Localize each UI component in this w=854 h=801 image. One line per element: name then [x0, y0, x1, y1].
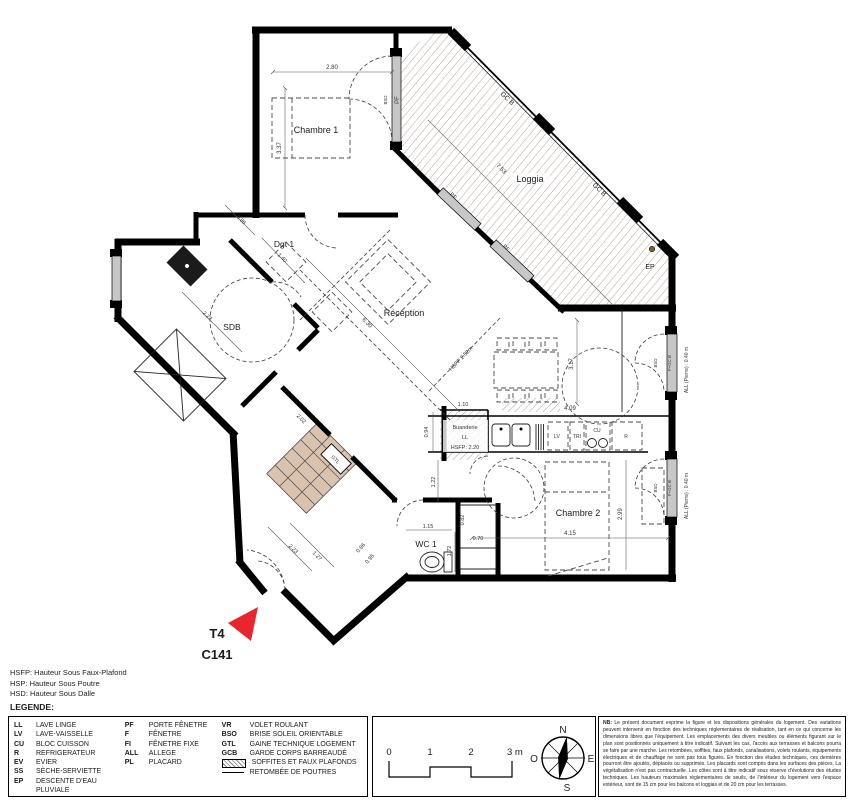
compass-n: N: [559, 725, 566, 736]
room-label-loggia: Loggia: [516, 174, 543, 184]
window-sdb: [112, 256, 121, 301]
legend-row: LVLAVE-VAISSELLE: [14, 730, 119, 739]
legend-column-3: VRVOLET ROULANT BSOBRISE SOLEIL ORIENTAB…: [222, 721, 362, 792]
f-gcb-label-1: F+GC B: [667, 355, 672, 371]
legend-row: FIFÊNETRE FIXE: [125, 740, 216, 749]
scale-bar: 0 1 2 3 m: [386, 747, 523, 777]
compass-rose: N S E O: [530, 725, 595, 794]
legend-column-2: PFPORTE FÊNETRE FFÊNETRE FIFÊNETRE FIXE …: [125, 721, 216, 792]
legend-row: VRVOLET ROULANT: [222, 721, 362, 730]
kitchen-cu-label: CU: [593, 428, 601, 434]
hatch-swatch-icon: [222, 759, 246, 768]
scale-and-compass-box: 0 1 2 3 m N S E O: [372, 716, 596, 797]
legend-row: EPDESCENTE D'EAU PLUVIALE: [14, 777, 119, 796]
room-label-dgt1: Dgt 1: [274, 239, 295, 249]
floor-plan-drawing: GTL Chambre 1 Loggia Dgt 1 SDB Réception…: [0, 0, 854, 666]
compass-e: E: [588, 754, 595, 765]
svg-text:3.37: 3.37: [277, 142, 283, 154]
svg-text:1.72: 1.72: [447, 546, 453, 557]
legend-row: BSOBRISE SOLEIL ORIENTABLE: [222, 730, 362, 739]
svg-text:0.86: 0.86: [355, 542, 367, 554]
bso-label-chambre2: BSO: [653, 483, 658, 493]
all-pierre-label-1: ALL (Pierre) : 0.40 m: [684, 347, 690, 393]
legend-row: GCBGARDE CORPS BARREAUDÉ: [222, 749, 362, 758]
svg-text:3 m: 3 m: [507, 747, 523, 758]
svg-text:1: 1: [427, 747, 432, 758]
svg-text:1.27: 1.27: [311, 550, 323, 562]
legend-box: LLLAVE LINGE LVLAVE-VAISSELLE CUBLOC CUI…: [8, 716, 368, 797]
svg-text:1.22: 1.22: [431, 477, 437, 488]
room-label-buanderie: Buanderie: [452, 425, 477, 431]
svg-text:2.99: 2.99: [618, 508, 624, 520]
unit-code-label: C141: [201, 647, 232, 662]
room-label-reception: Réception: [384, 308, 425, 318]
svg-text:0.94: 0.94: [424, 427, 430, 438]
svg-text:2.23: 2.23: [287, 543, 299, 555]
bso-label-chambre1: BSO: [383, 95, 388, 105]
height-abbreviation-notes: HSFP: Hauteur Sous Faux-Plafond HSP: Hau…: [10, 668, 127, 700]
svg-text:3.17: 3.17: [569, 358, 575, 370]
legend-row: RREFRIGERATEUR: [14, 749, 119, 758]
legend-row-retombee: RETOMBÉE DE POUTRES: [222, 768, 362, 777]
ep-label: EP: [645, 264, 655, 271]
bso-label-sejour: BSO: [653, 358, 658, 368]
scale-compass-drawing: 0 1 2 3 m N S E O: [373, 717, 597, 796]
nb-disclaimer-box: NB: Le présent document exprime la figur…: [598, 716, 846, 797]
kitchen-lv-label: LV: [554, 434, 560, 440]
legend-row: PFPORTE FÊNETRE: [125, 721, 216, 730]
legend-row: GTLGAINE TECHNIQUE LOGEMENT: [222, 740, 362, 749]
room-label-sdb: SDB: [223, 322, 241, 332]
legend-row: LLLAVE LINGE: [14, 721, 119, 730]
legend-row: EVEVIER: [14, 758, 119, 767]
kitchen-tri-label: TRI: [573, 434, 581, 440]
ep-downpipe: [649, 246, 655, 252]
f-gcb-label-2: F+GC B: [667, 480, 672, 496]
legend-title: LEGENDE:: [10, 702, 54, 712]
svg-text:0.95: 0.95: [364, 553, 376, 565]
svg-text:0.82: 0.82: [460, 515, 466, 526]
room-label-chambre1: Chambre 1: [294, 125, 339, 135]
pf-label-chambre1: PF: [395, 96, 401, 104]
legend-row: SSSÈCHE-SERVIETTE: [14, 767, 119, 776]
unit-type-label: T4: [209, 626, 225, 641]
entry-arrow: [228, 607, 258, 641]
svg-text:0: 0: [386, 747, 391, 758]
svg-text:2: 2: [468, 747, 473, 758]
legend-row: ALLALLEGE: [125, 749, 216, 758]
legend-column-1: LLLAVE LINGE LVLAVE-VAISSELLE CUBLOC CUI…: [14, 721, 119, 792]
buanderie-hsfp-label: HSFP: 2.20: [451, 445, 479, 451]
buanderie-ll-label: LL: [462, 435, 468, 441]
svg-text:1.15: 1.15: [423, 524, 434, 530]
nb-label: NB:: [603, 720, 612, 726]
room-label-chambre2: Chambre 2: [556, 508, 601, 518]
hsfp-reception-label: HSFP 2.52m: [448, 346, 474, 373]
note-hsp: HSP: Hauteur Sous Poutre: [10, 679, 127, 690]
loggia-hatch-area: [400, 33, 672, 305]
svg-text:1.40: 1.40: [276, 252, 288, 264]
kitchen-r-label: R: [624, 434, 628, 440]
svg-text:4.09: 4.09: [564, 406, 576, 412]
nb-text: Le présent document exprime la figure et…: [603, 720, 841, 788]
red-entry-marker: T4 C141: [201, 607, 258, 662]
legend-row: CUBLOC CUISSON: [14, 740, 119, 749]
compass-o: O: [530, 754, 538, 765]
legend-row: PLPLACARD: [125, 758, 216, 767]
svg-text:2.80: 2.80: [326, 65, 338, 71]
note-hsfp: HSFP: Hauteur Sous Faux-Plafond: [10, 668, 127, 679]
svg-text:4.15: 4.15: [564, 531, 576, 537]
svg-text:1.10: 1.10: [458, 402, 469, 408]
legend-row: FFÊNETRE: [125, 730, 216, 739]
svg-text:6.30: 6.30: [360, 317, 373, 330]
room-label-wc1: WC 1: [415, 539, 437, 549]
floor-plan-page: GTL Chambre 1 Loggia Dgt 1 SDB Réception…: [0, 0, 854, 800]
all-pierre-label-2: ALL (Pierre) : 0.40 m: [684, 473, 690, 519]
compass-s: S: [564, 783, 571, 794]
svg-text:2.02: 2.02: [295, 413, 307, 425]
soffit-hatch-area: [502, 398, 560, 412]
legend-row-soffites: SOFFITES ET FAUX PLAFONDS: [222, 758, 362, 768]
svg-text:0.70: 0.70: [473, 536, 484, 542]
beam-line-swatch-icon: [222, 772, 244, 773]
note-hsd: HSD: Hauteur Sous Dalle: [10, 689, 127, 700]
